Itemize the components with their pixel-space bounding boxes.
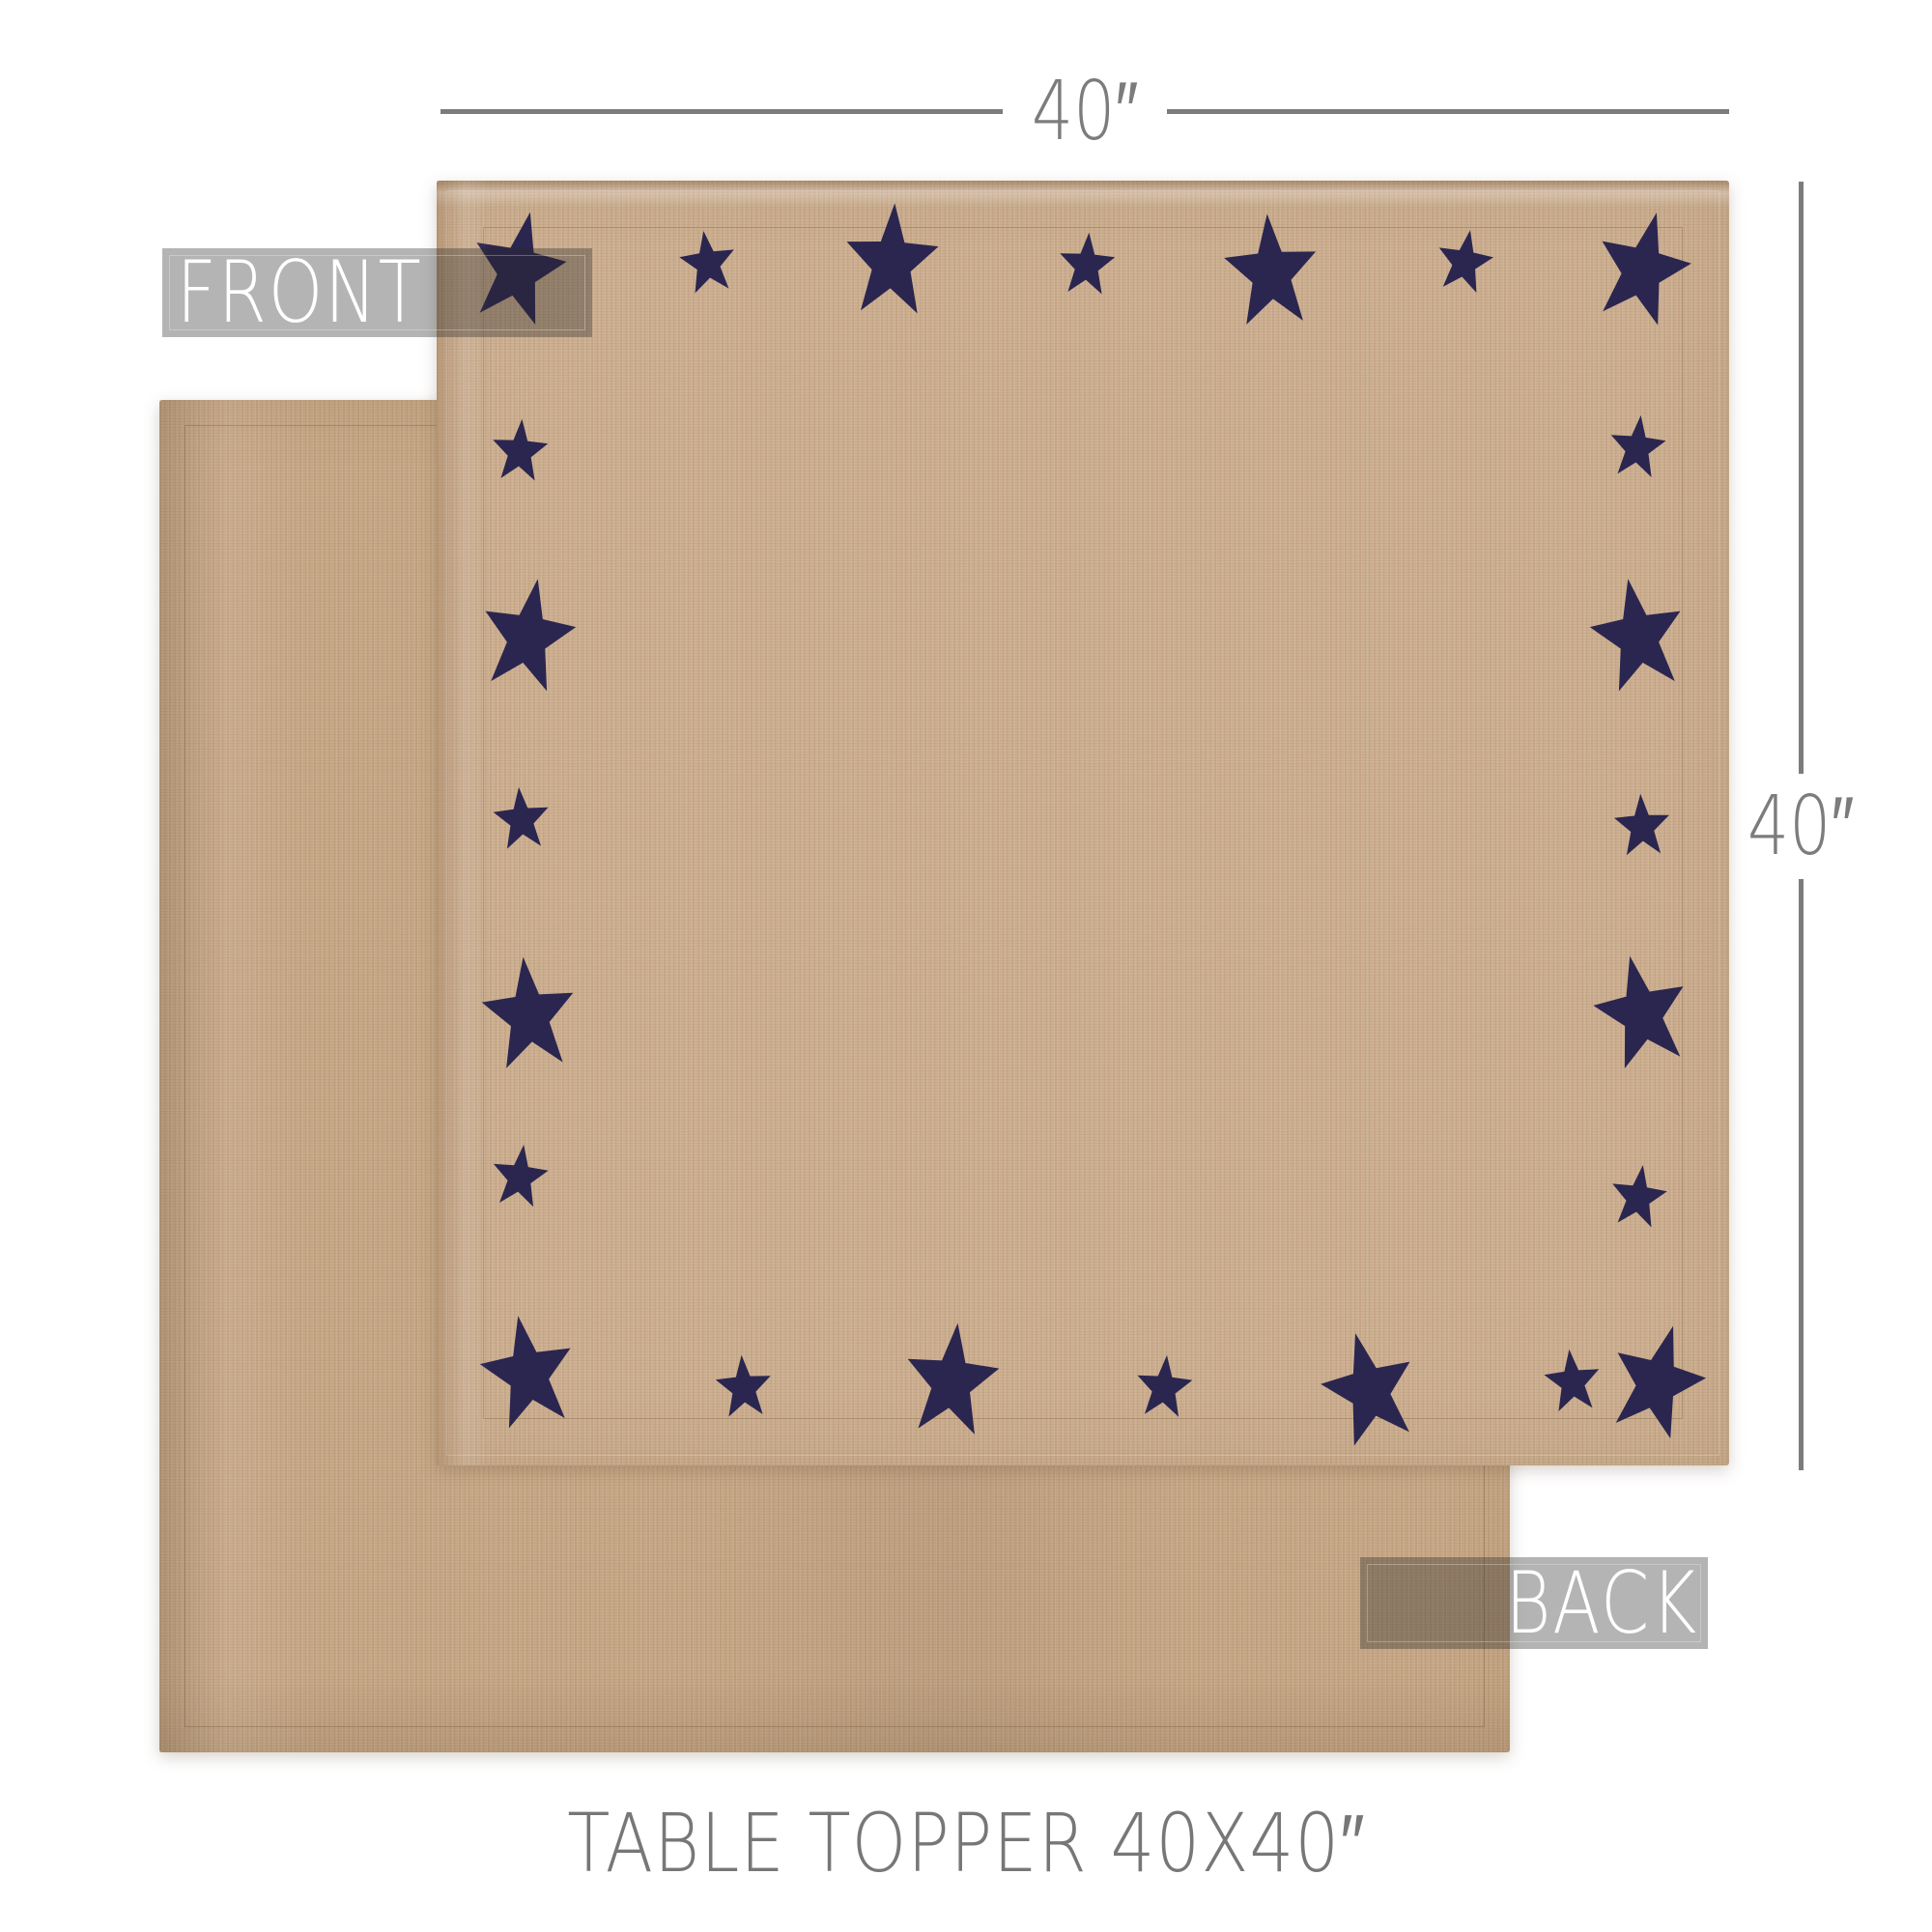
right-dimension-line-top xyxy=(1799,182,1804,774)
large-star-icon xyxy=(469,570,584,706)
small-star-icon xyxy=(1541,1346,1605,1419)
large-star-icon xyxy=(896,1317,1006,1448)
right-dimension: 40″ xyxy=(1739,182,1862,1470)
small-star-icon xyxy=(713,1352,776,1424)
large-star-icon xyxy=(475,951,584,1082)
top-dimension-line-left xyxy=(440,109,1003,114)
product-dimension-image: { "labels": { "front": "FRONT", "back": … xyxy=(0,0,1932,1932)
large-star-icon xyxy=(1308,1321,1432,1462)
back-label: BACK xyxy=(1515,1557,1689,1649)
large-star-icon xyxy=(1580,570,1696,706)
small-star-icon xyxy=(1430,224,1498,300)
front-cloth xyxy=(437,181,1729,1465)
large-star-icon xyxy=(840,200,943,327)
large-star-icon xyxy=(470,1306,586,1442)
small-star-icon xyxy=(487,1141,553,1215)
front-cloth-stars xyxy=(437,181,1729,1465)
front-label-band: FRONT xyxy=(162,248,592,337)
top-dimension-label: 40″ xyxy=(1032,71,1139,153)
caption: TABLE TOPPER 40X40″ xyxy=(0,1803,1932,1884)
small-star-icon xyxy=(488,416,551,488)
large-star-icon xyxy=(1219,209,1324,337)
small-star-icon xyxy=(674,227,741,302)
right-dimension-label: 40″ xyxy=(1747,785,1855,867)
large-star-icon xyxy=(1594,1312,1720,1456)
small-star-icon xyxy=(1132,1352,1196,1425)
top-dimension: 40″ xyxy=(440,68,1729,155)
top-dimension-line-right xyxy=(1167,109,1729,114)
small-star-icon xyxy=(1612,791,1674,862)
right-dimension-line-bottom xyxy=(1799,879,1804,1471)
large-star-icon xyxy=(1581,200,1705,341)
back-label-band: BACK xyxy=(1360,1557,1708,1649)
caption-text: TABLE TOPPER 40X40″ xyxy=(567,1803,1365,1884)
small-star-icon xyxy=(1056,230,1119,301)
small-star-icon xyxy=(1605,1161,1672,1236)
front-label: FRONT xyxy=(187,248,412,337)
large-star-icon xyxy=(1582,945,1702,1084)
small-star-icon xyxy=(1605,412,1670,485)
small-star-icon xyxy=(490,784,554,857)
